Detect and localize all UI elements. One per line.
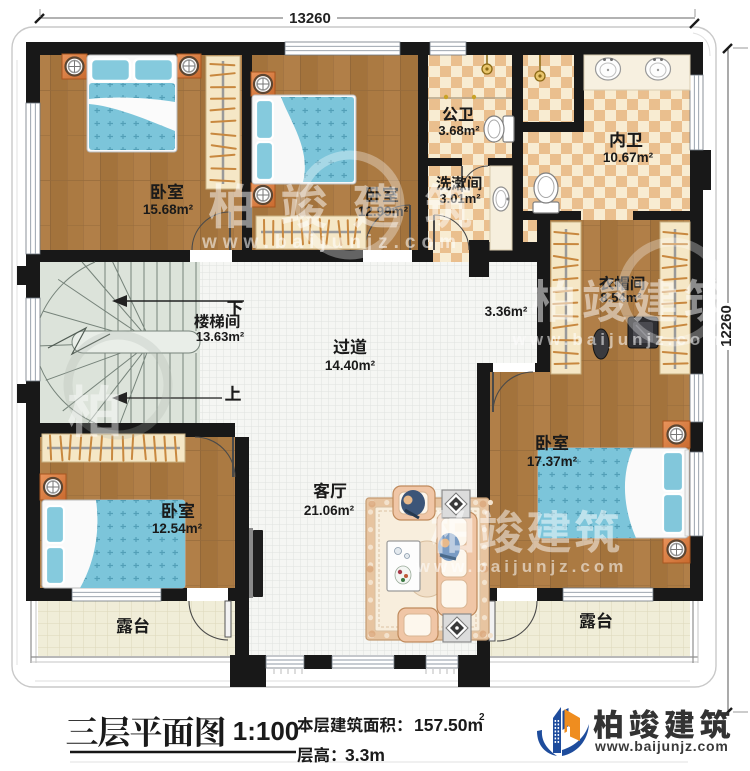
svg-text:1:100: 1:100 [233,716,300,746]
svg-text:157.50m: 157.50m [414,715,483,735]
svg-text:13260: 13260 [289,10,331,27]
svg-text:www.baijunjz.com: www.baijunjz.com [416,557,628,576]
svg-text:15.68m²: 15.68m² [143,202,194,217]
svg-text:3.36m²: 3.36m² [485,304,528,319]
svg-text:12260: 12260 [718,305,735,347]
svg-text:www.baijunjz.com: www.baijunjz.com [201,232,462,253]
svg-text:3.3m: 3.3m [345,745,385,765]
svg-text:2: 2 [479,712,485,723]
svg-text:13.63m²: 13.63m² [196,329,245,344]
svg-text:www.baijunjz.com: www.baijunjz.com [594,738,729,754]
svg-text:21.06m²: 21.06m² [304,503,355,518]
svg-text:10.67m²: 10.67m² [603,150,654,165]
svg-text:3.68m²: 3.68m² [438,123,480,138]
svg-text:12.54m²: 12.54m² [152,521,203,536]
svg-text:14.40m²: 14.40m² [325,358,376,373]
svg-text:17.37m²: 17.37m² [527,454,578,469]
svg-text:www.baijunjz.com: www.baijunjz.com [512,330,724,349]
